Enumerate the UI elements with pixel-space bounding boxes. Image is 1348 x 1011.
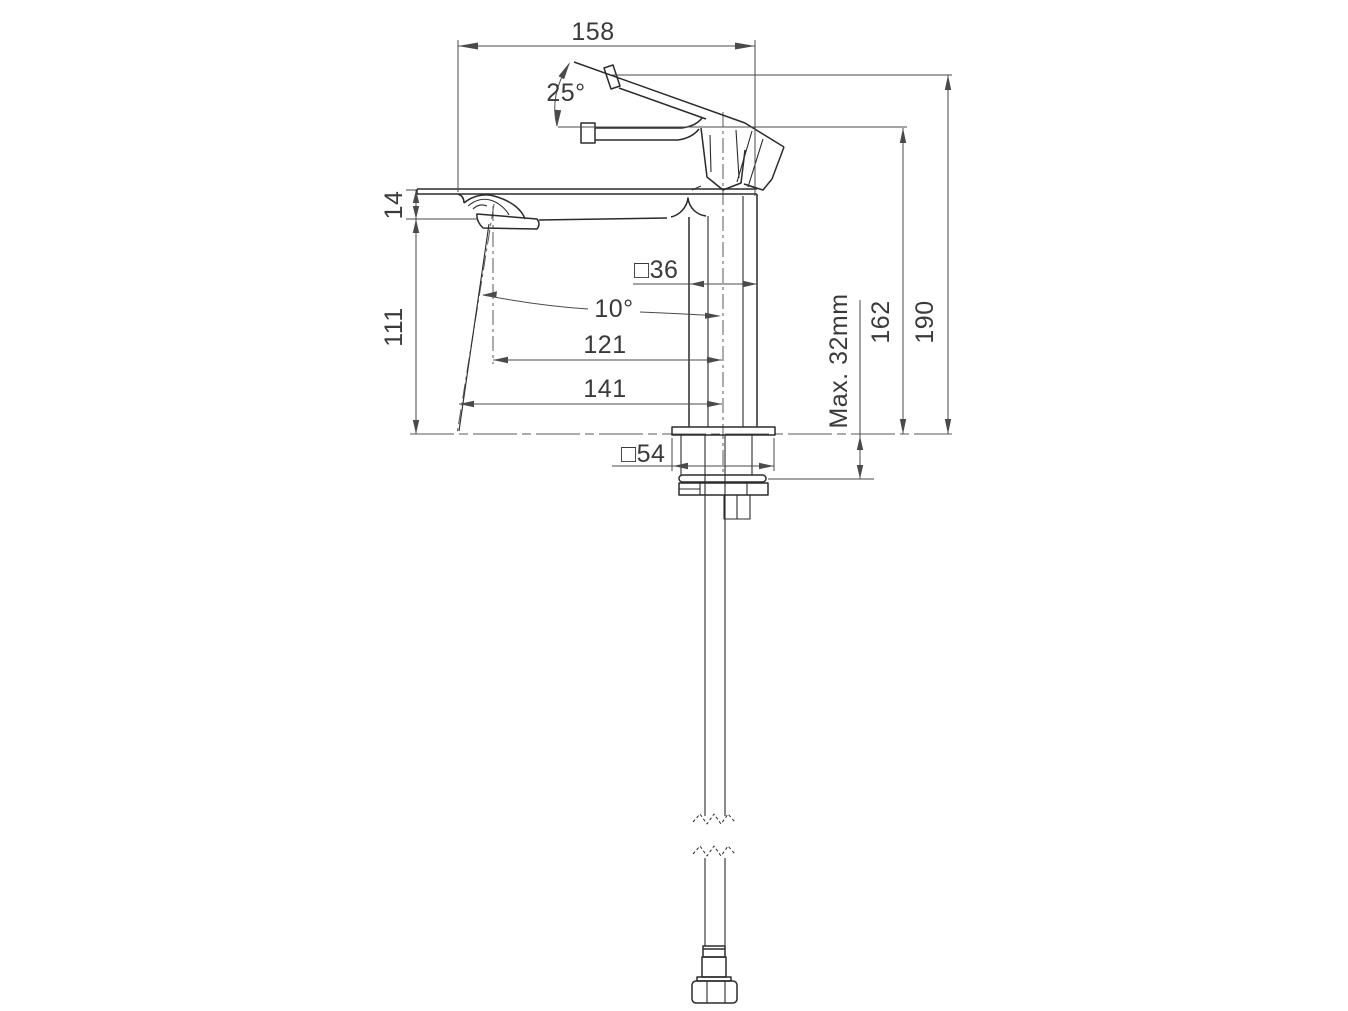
handle-open-bottom	[619, 88, 706, 119]
drawing-sheet: 158 25° 14 111 □36 10° 121 141 □54 Max. …	[0, 0, 1348, 1011]
arrow-141-left	[459, 401, 474, 407]
arrow-141-right	[707, 401, 722, 407]
hose-break-line-top	[693, 814, 735, 824]
outlet-lip	[477, 214, 539, 229]
dim-label-158: 158	[571, 18, 614, 46]
dim-label-36: □36	[634, 256, 678, 284]
dim-label-54: □54	[621, 440, 665, 468]
handle-closed-bottom	[595, 129, 699, 140]
handle-closed-end-cap	[581, 123, 595, 143]
dim-label-25deg: 25°	[546, 79, 585, 107]
arrow-54-right	[759, 463, 774, 469]
hose-end-hex-nut	[692, 981, 737, 1003]
arrow-max32-up	[857, 436, 863, 450]
arrow-25-top	[559, 62, 571, 79]
mounting-nut-facets	[679, 483, 747, 495]
centerlines-group	[410, 112, 952, 472]
dim-label-190: 190	[911, 300, 939, 343]
arrow-111-up	[413, 219, 419, 233]
dim-label-111: 111	[380, 307, 408, 347]
arrow-36-right	[743, 281, 757, 287]
arrow-121-left	[493, 357, 508, 363]
hose-collar	[703, 946, 725, 957]
faucet-outline-group	[417, 62, 784, 1003]
dim-label-14: 14	[380, 191, 408, 220]
dim-label-121: 121	[583, 331, 626, 359]
arrow-162-up	[900, 128, 906, 143]
arrow-10-right	[705, 313, 721, 319]
cartridge-inner-lines	[710, 130, 739, 178]
dimension-lines-group	[406, 40, 952, 479]
arrow-190-down	[945, 419, 951, 434]
spout-underside	[539, 218, 667, 220]
hose-fitting	[702, 957, 726, 977]
hose-nut-facets	[707, 981, 725, 1003]
arrow-36-left	[690, 281, 704, 287]
arrowheads-group	[413, 43, 951, 480]
dim-label-10deg: 10°	[594, 295, 633, 323]
arrow-158-left	[458, 43, 478, 50]
arrow-14-down	[413, 206, 419, 219]
spout-top-plate	[417, 189, 757, 194]
supply-hose-lower	[705, 858, 725, 946]
dim-label-max32: Max. 32mm	[825, 293, 853, 428]
spout-tip-curl	[458, 194, 464, 203]
dim-label-141: 141	[583, 375, 626, 403]
outlet-inner-curve	[468, 199, 509, 215]
threaded-shank	[681, 435, 752, 475]
hose-break-line-bottom	[693, 846, 735, 856]
arrow-max32-down	[857, 465, 863, 479]
outlet-small-curve	[473, 205, 487, 209]
technical-drawing-canvas: 158 25° 14 111 □36 10° 121 141 □54 Max. …	[0, 0, 1348, 1011]
arrow-111-down	[413, 420, 419, 434]
supply-hose-upper	[705, 435, 725, 816]
handle-block-outline	[744, 147, 784, 190]
ext-lines-158	[458, 40, 755, 196]
water-stream-line	[459, 224, 489, 431]
handle-open-end-cap	[604, 65, 620, 89]
dim-label-162: 162	[867, 300, 895, 343]
arrow-162-down	[900, 419, 906, 434]
arrow-14-up	[413, 190, 419, 203]
arrow-158-right	[735, 43, 755, 50]
rubber-washer	[679, 475, 766, 482]
arrow-121-right	[707, 357, 722, 363]
threaded-stud	[724, 495, 750, 519]
arrow-190-up	[945, 75, 951, 90]
spout-body-fillet	[671, 198, 706, 217]
